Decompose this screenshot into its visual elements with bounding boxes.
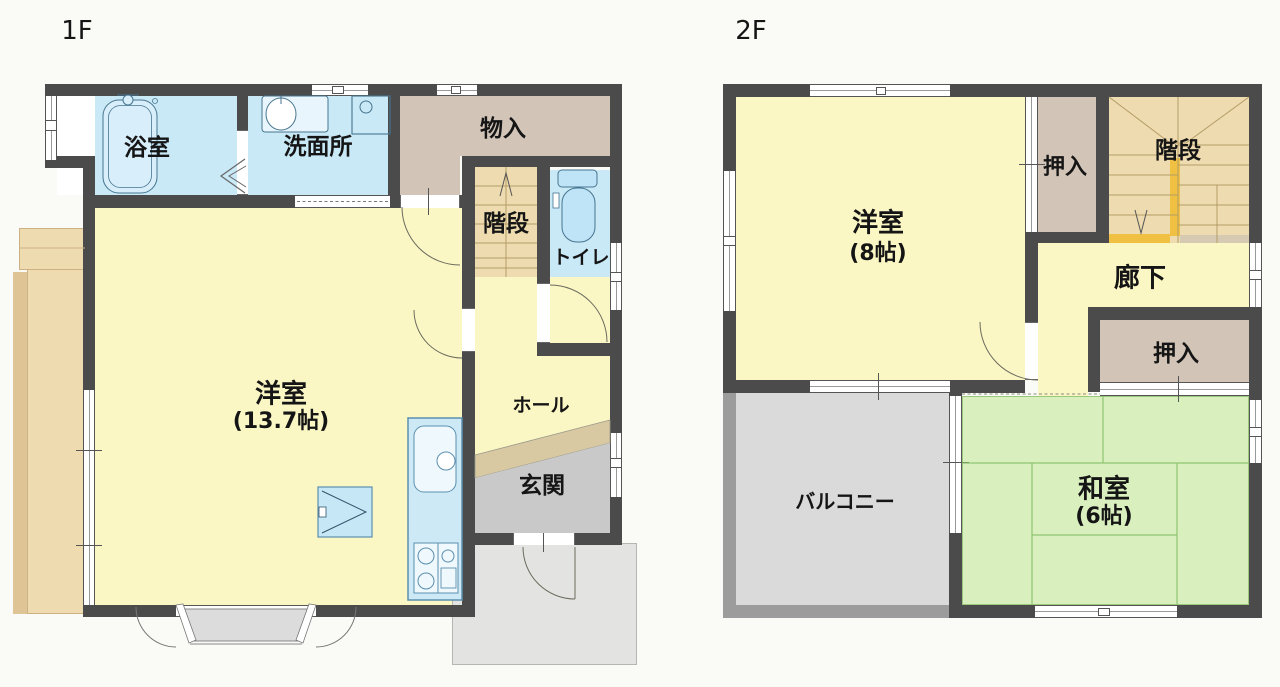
label-stairs-2f: 階段 [1155, 131, 1201, 165]
living-left-window [83, 390, 95, 605]
wall [610, 310, 622, 433]
floor-label-2f: 2F [735, 16, 767, 46]
wall [462, 167, 475, 308]
label-closet-top: 押入 [1043, 149, 1087, 181]
closet-bottom-sliding-door [1100, 382, 1249, 396]
label-living-size: (13.7帖) [233, 403, 329, 435]
wall [316, 605, 475, 617]
wall [1088, 307, 1100, 392]
window-shutter-marker [332, 86, 344, 94]
wood-deck-step [19, 228, 85, 270]
wall [537, 167, 550, 283]
wall [1088, 307, 1262, 320]
door-tick [543, 524, 544, 552]
window-tick [76, 450, 102, 451]
window-shutter-marker [610, 272, 622, 282]
window-shutter-marker [1249, 270, 1262, 280]
floor-plan-canvas: 1F 浴室 洗面所 物入 階段 トイレ 洋室 (13.7帖) ホール 玄関 2F… [0, 0, 1280, 687]
balcony-wall [723, 393, 736, 618]
label-western-2f-size: (8帖) [849, 235, 906, 267]
window-shutter-marker [1098, 608, 1110, 616]
wall [1249, 97, 1262, 243]
label-western-2f: 洋室 [852, 203, 904, 240]
label-toilet: トイレ [552, 243, 609, 270]
wall [462, 352, 475, 617]
label-stairs-1f: 階段 [483, 204, 529, 238]
label-japanese-size: (6帖) [1075, 498, 1132, 530]
window-shutter-marker [45, 120, 57, 131]
wood-deck [27, 268, 85, 614]
storage-door-opening [400, 195, 460, 208]
label-washroom: 洗面所 [284, 127, 353, 161]
wall [95, 195, 295, 208]
window-shutter-marker [1249, 427, 1262, 437]
wall [390, 195, 400, 208]
room-storage-ext [400, 96, 460, 195]
balcony-japanese-sliding-door [949, 396, 962, 533]
balcony-window [810, 380, 950, 393]
balcony-wall [723, 605, 949, 618]
wall [477, 84, 622, 96]
toilet-door-opening [537, 283, 550, 343]
window-tick [943, 462, 969, 463]
entrance-porch [452, 543, 637, 665]
wall [388, 96, 400, 195]
label-balcony: バルコニー [795, 486, 895, 515]
wall [1025, 232, 1109, 243]
wall [368, 84, 437, 96]
wall [83, 168, 95, 390]
floor-label-1f: 1F [61, 16, 93, 46]
window-shutter-marker [451, 86, 461, 94]
door-tick [1178, 376, 1179, 402]
window-shutter-marker [876, 87, 886, 95]
window-shutter-marker [610, 458, 622, 468]
wood-deck-shadow [13, 272, 27, 614]
label-bathroom: 浴室 [124, 128, 170, 162]
window-shutter-marker [723, 236, 736, 246]
door-tick [428, 188, 429, 215]
wall [237, 96, 248, 130]
wall [723, 84, 810, 97]
western-room-door-opening [1025, 322, 1038, 380]
label-corridor: 廊下 [1114, 258, 1166, 295]
window-tick [878, 373, 879, 400]
wall [1025, 232, 1038, 322]
wall [83, 605, 176, 617]
wall [949, 605, 1035, 618]
label-hall: ホール [512, 391, 569, 418]
living-hall-door-opening [462, 308, 475, 352]
wall [1249, 307, 1262, 400]
label-closet-bottom: 押入 [1153, 334, 1199, 368]
entrance-door-opening [513, 533, 575, 545]
wall [45, 84, 312, 96]
wall [462, 156, 610, 167]
window-tick [76, 545, 102, 546]
room-stairs-2f [1109, 97, 1249, 243]
wall [1096, 97, 1109, 243]
wall [1249, 463, 1262, 605]
washroom-sliding-door [295, 195, 390, 208]
door-tick [1019, 164, 1045, 165]
bath-folding-door-opening [237, 130, 248, 195]
label-storage: 物入 [480, 109, 526, 143]
wall [610, 84, 622, 243]
wall [723, 97, 736, 171]
room-corridor-strip [1038, 307, 1088, 396]
wall [949, 380, 962, 396]
wall [1177, 605, 1262, 618]
wall [723, 380, 810, 393]
terrace-door-opening [176, 605, 316, 617]
wall [537, 343, 622, 356]
label-entrance: 玄関 [519, 466, 565, 500]
wall [610, 497, 622, 545]
wall [950, 84, 1262, 97]
wall [949, 533, 962, 605]
